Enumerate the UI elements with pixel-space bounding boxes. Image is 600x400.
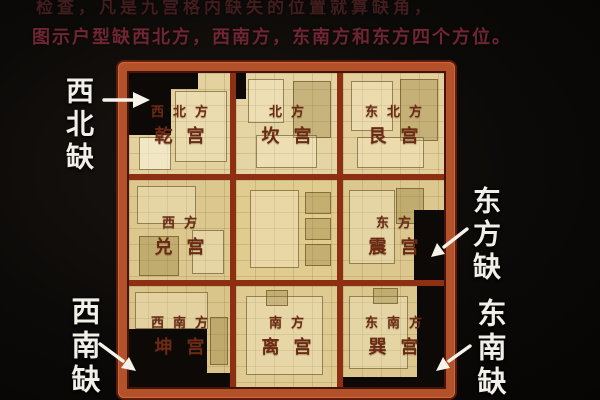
callout-southwest-missing: 西南缺	[62, 296, 104, 398]
cell-southwest: 西南方 坤宫	[129, 286, 230, 387]
missing-area-northwest	[171, 73, 197, 89]
callout-east-missing: 东方缺	[465, 186, 505, 285]
palace-label-north: 北方 坎宫	[236, 101, 337, 148]
palace-label-northeast: 东北方 艮宫	[343, 101, 444, 148]
missing-area-southwest	[207, 373, 230, 387]
header-line-1: 检查，凡是九宫格内缺失的位置就算缺角，	[36, 0, 435, 18]
direction-label: 北方	[236, 101, 337, 120]
callout-northwest-missing: 西北缺	[58, 76, 98, 175]
palace-name: 兑宫	[129, 233, 230, 259]
palace-name: 离宫	[236, 333, 337, 359]
missing-area-southeast	[343, 377, 417, 387]
cell-northwest: 西北方 乾宫	[129, 73, 230, 174]
palace-name: 乾宫	[129, 122, 230, 148]
room-outline	[305, 218, 331, 240]
palace-name: 坤宫	[129, 333, 230, 359]
cell-south: 南方 离宫	[236, 286, 337, 387]
room-outline	[305, 244, 331, 266]
palace-name: 坎宫	[236, 122, 337, 148]
direction-label: 东方	[343, 212, 444, 231]
nine-palace-grid: 西北方 乾宫 北方 坎宫 东北方	[127, 71, 446, 389]
direction-label: 西南方	[129, 312, 230, 331]
palace-label-east: 东方 震宫	[343, 212, 444, 259]
direction-label: 南方	[236, 312, 337, 331]
callout-southeast-missing: 东南缺	[468, 298, 510, 400]
palace-label-southeast: 东南方 巽宫	[343, 312, 444, 359]
palace-label-west: 西方 兑宫	[129, 212, 230, 259]
room-outline	[266, 290, 288, 306]
palace-label-center	[236, 208, 337, 210]
palace-name: 艮宫	[343, 122, 444, 148]
fengshui-missing-corners-diagram: 检查，凡是九宫格内缺失的位置就算缺角， 图示户型缺西北方，西南方，东南方和东方四…	[0, 0, 600, 400]
palace-name: 巽宫	[343, 333, 444, 359]
palace-name: 震宫	[343, 233, 444, 259]
direction-label: 东北方	[343, 101, 444, 120]
palace-label-northwest: 西北方 乾宫	[129, 101, 230, 148]
direction-label: 东南方	[343, 312, 444, 331]
header-line-2: 图示户型缺西北方，西南方，东南方和东方四个方位。	[32, 23, 512, 49]
palace-label-south: 南方 离宫	[236, 312, 337, 359]
cell-west: 西方 兑宫	[129, 180, 230, 281]
room-outline	[373, 288, 397, 304]
cell-center	[236, 180, 337, 281]
palace-label-southwest: 西南方 坤宫	[129, 312, 230, 359]
floorplan-frame: 西北方 乾宫 北方 坎宫 东北方	[118, 62, 455, 398]
cell-southeast: 东南方 巽宫	[343, 286, 444, 387]
room-outline	[305, 192, 331, 214]
direction-label: 西北方	[129, 101, 230, 120]
room-outline	[250, 190, 298, 269]
missing-area-notch	[236, 73, 246, 99]
cell-east: 东方 震宫	[343, 180, 444, 281]
cell-north: 北方 坎宫	[236, 73, 337, 174]
direction-label: 西方	[129, 212, 230, 231]
cell-northeast: 东北方 艮宫	[343, 73, 444, 174]
